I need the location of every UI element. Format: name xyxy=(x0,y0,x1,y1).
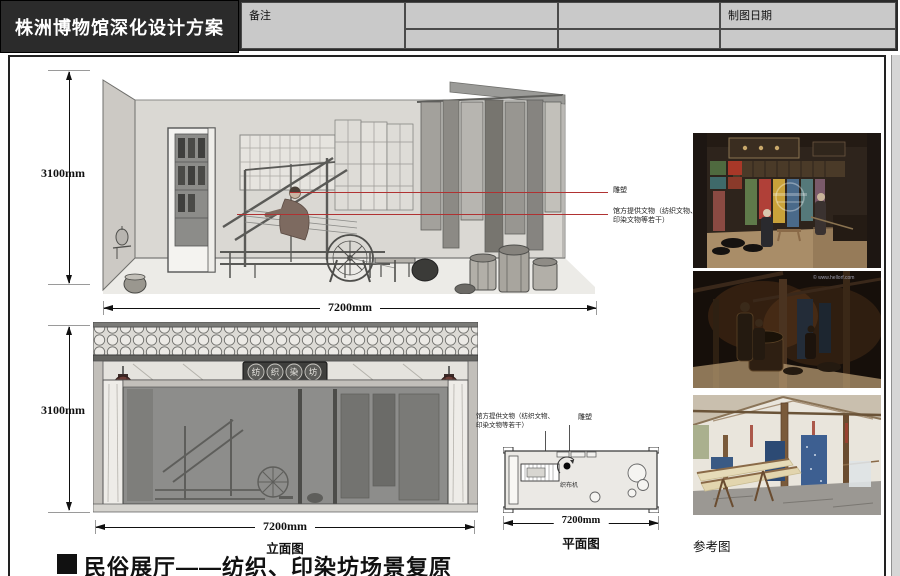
annotation-artifacts: 馆方提供文物（纺织文物、 印染文物等若干） xyxy=(613,207,697,225)
annotation-leader-line-sculpture xyxy=(290,192,608,193)
sign-char-2: 织 xyxy=(271,367,280,377)
artifact-cabinet xyxy=(168,128,215,272)
reference-photo-drying-workshop xyxy=(693,395,881,515)
perspective-elevation-drawing xyxy=(95,62,600,294)
front-elevation-drawing: 纺 织 染 坊 xyxy=(93,322,478,514)
plan-annotation-artifacts-line2: 印染文物等若干） xyxy=(476,422,554,431)
lattice-screen xyxy=(335,120,413,210)
floor-strip xyxy=(93,504,478,512)
signboard: 纺 织 染 坊 xyxy=(243,362,327,382)
dimension-horizontal-front-elevation: 7200mm xyxy=(95,519,475,535)
interior-opening xyxy=(123,380,448,504)
annotation-artifacts-line2: 印染文物等若干） xyxy=(613,216,697,225)
title-block-cell-empty-4 xyxy=(558,29,720,49)
section-title: 民俗展厅——纺织、印染坊场景复原 xyxy=(84,550,452,576)
dimension-label-7200-front: 7200mm xyxy=(255,519,315,534)
section-bullet-square xyxy=(57,554,77,574)
tiled-roof xyxy=(93,322,478,361)
page-edge-strip xyxy=(891,55,900,576)
title-block-cell-empty-3 xyxy=(405,29,558,49)
plan-room-label: 织布机 xyxy=(560,481,578,489)
plan-annotation-artifacts: 馆方提供文物（纺织文物、 印染文物等若干） xyxy=(476,413,554,430)
dark-basket xyxy=(412,259,438,281)
dimension-label-7200-top: 7200mm xyxy=(320,300,380,315)
annotation-leader-line-artifacts xyxy=(237,214,608,215)
sheet-title-box: 株洲博物馆深化设计方案 xyxy=(0,0,239,53)
plan-caption: 平面图 xyxy=(503,533,659,552)
dimension-label-3100-top: 3100mm xyxy=(28,166,98,181)
annotation-sculpture: 雕塑 xyxy=(613,186,627,195)
plan-annotation-sculpture: 雕塑 xyxy=(578,414,592,423)
dimension-horizontal-top-drawing: 7200mm xyxy=(103,300,597,316)
dimension-label-3100-front: 3100mm xyxy=(28,403,98,418)
basket-pot xyxy=(124,274,146,293)
reference-photo-dye-shop xyxy=(693,133,881,268)
sign-char-3: 染 xyxy=(290,367,299,377)
plan-annotation-artifacts-line1: 馆方提供文物（纺织文物、 xyxy=(476,413,554,422)
reference-caption: 参考图 xyxy=(693,536,731,555)
sign-char-1: 纺 xyxy=(252,367,261,377)
title-block-cell-empty-5 xyxy=(720,29,896,49)
sheet-title: 株洲博物馆深化设计方案 xyxy=(15,14,224,40)
title-block-cell-empty-1 xyxy=(405,2,558,29)
dimension-horizontal-plan: 7200mm xyxy=(503,515,659,531)
photo-watermark: © www.hellorf.com xyxy=(813,274,854,281)
title-block-cell-remarks: 备注 xyxy=(241,2,405,49)
design-sheet-page: 株洲博物馆深化设计方案 制图日期 备注 xyxy=(0,0,900,576)
annotation-artifacts-line1: 馆方提供文物（纺织文物、 xyxy=(613,207,697,216)
dimension-vertical-front-elevation xyxy=(42,324,98,516)
plan-loom xyxy=(521,464,559,481)
title-block-cell-drawing-date: 制图日期 xyxy=(720,2,896,29)
sign-char-4: 坊 xyxy=(309,367,318,377)
section-title-row: 民俗展厅——纺织、印染坊场景复原 xyxy=(57,550,452,576)
reference-photo-statues-vat: © www.hellorf.com xyxy=(693,271,881,388)
dimension-label-7200-plan: 7200mm xyxy=(554,515,609,526)
title-block-cell-empty-2 xyxy=(558,2,720,29)
title-block-table: 制图日期 备注 xyxy=(239,0,898,51)
plan-view-drawing: 织布机 xyxy=(503,447,659,513)
